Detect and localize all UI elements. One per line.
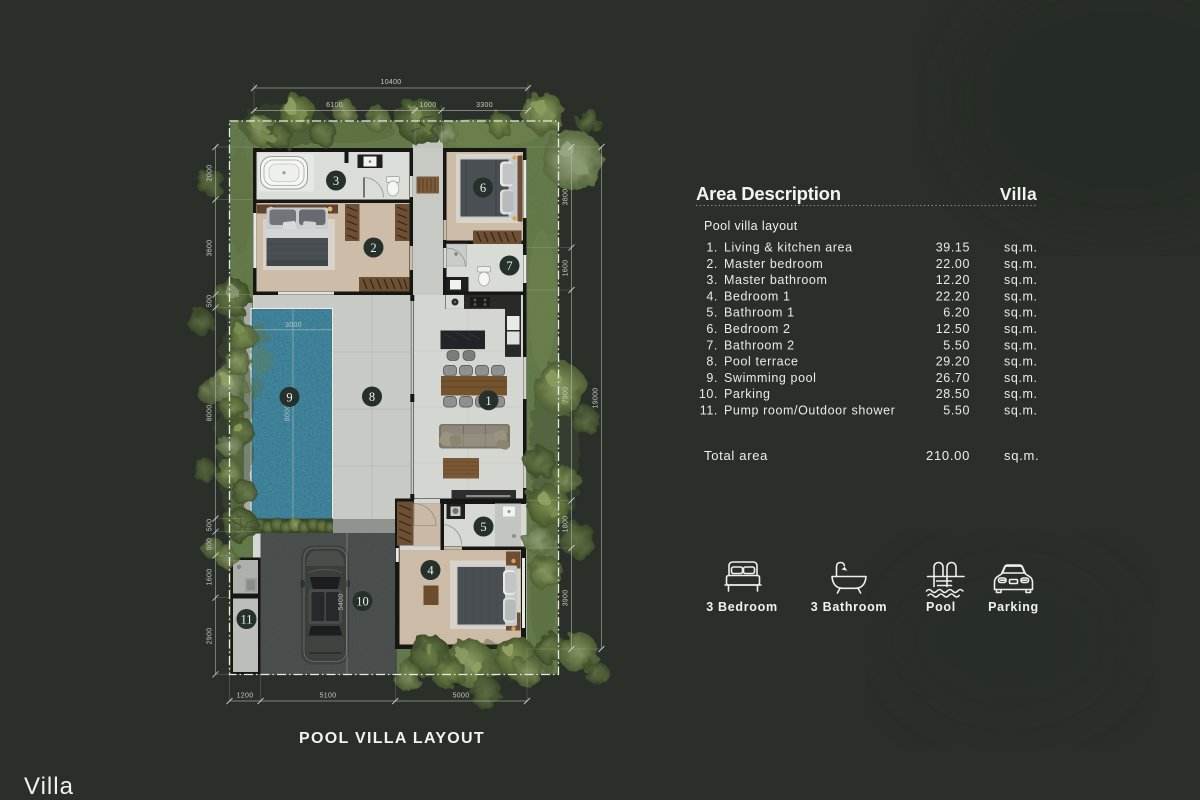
svg-text:5.50: 5.50 <box>943 338 970 352</box>
svg-text:4.: 4. <box>706 289 718 303</box>
svg-text:11.: 11. <box>700 404 718 418</box>
svg-text:Bedroom 2: Bedroom 2 <box>724 322 791 336</box>
svg-text:3 Bathroom: 3 Bathroom <box>811 600 887 614</box>
svg-text:sq.m.: sq.m. <box>1004 355 1038 369</box>
svg-text:2000: 2000 <box>207 165 214 182</box>
svg-text:Living & kitchen area: Living & kitchen area <box>724 241 853 255</box>
svg-text:sq.m.: sq.m. <box>1004 322 1038 336</box>
svg-text:Pool terrace: Pool terrace <box>724 355 799 369</box>
svg-text:22.00: 22.00 <box>936 257 970 271</box>
svg-text:Villa: Villa <box>1000 184 1037 204</box>
svg-text:29.20: 29.20 <box>936 355 970 369</box>
svg-text:sq.m.: sq.m. <box>1004 257 1038 271</box>
svg-text:4: 4 <box>427 564 434 578</box>
svg-text:sq.m.: sq.m. <box>1004 371 1038 385</box>
svg-text:sq.m.: sq.m. <box>1004 448 1039 463</box>
svg-text:3800: 3800 <box>563 189 570 206</box>
svg-text:Pool villa layout: Pool villa layout <box>704 219 798 233</box>
svg-text:2.: 2. <box>706 257 718 271</box>
svg-text:Parking: Parking <box>724 387 771 401</box>
svg-text:Bathroom 2: Bathroom 2 <box>724 338 795 352</box>
svg-text:7.: 7. <box>706 338 718 352</box>
svg-text:Bathroom 1: Bathroom 1 <box>724 306 795 320</box>
svg-text:5.50: 5.50 <box>943 404 970 418</box>
svg-text:1800: 1800 <box>563 516 570 533</box>
svg-text:900: 900 <box>207 538 214 551</box>
svg-text:22.20: 22.20 <box>936 289 970 303</box>
svg-text:Total area: Total area <box>704 448 768 463</box>
svg-text:12.50: 12.50 <box>936 322 970 336</box>
svg-text:1: 1 <box>485 394 491 408</box>
svg-text:9.: 9. <box>706 371 718 385</box>
svg-text:10: 10 <box>356 595 369 609</box>
svg-text:6100: 6100 <box>326 102 343 109</box>
svg-text:6: 6 <box>480 181 486 195</box>
svg-text:500: 500 <box>207 519 214 532</box>
svg-text:8000: 8000 <box>285 405 292 422</box>
svg-text:1600: 1600 <box>207 569 214 586</box>
svg-text:Pool: Pool <box>926 600 956 614</box>
svg-text:1.: 1. <box>706 241 718 255</box>
svg-text:sq.m.: sq.m. <box>1004 404 1038 418</box>
svg-text:3: 3 <box>333 174 339 188</box>
svg-text:8000: 8000 <box>207 405 214 422</box>
svg-text:6.20: 6.20 <box>943 306 970 320</box>
svg-text:10.: 10. <box>699 387 718 401</box>
svg-text:7: 7 <box>506 259 512 273</box>
svg-text:8: 8 <box>369 390 375 404</box>
svg-text:Master bathroom: Master bathroom <box>724 273 827 287</box>
svg-text:1000: 1000 <box>420 102 437 109</box>
svg-text:10400: 10400 <box>381 79 402 86</box>
svg-text:500: 500 <box>207 295 214 308</box>
svg-text:POOL VILLA LAYOUT: POOL VILLA LAYOUT <box>299 730 485 747</box>
svg-text:11: 11 <box>240 613 252 627</box>
svg-text:sq.m.: sq.m. <box>1004 387 1038 401</box>
svg-text:3900: 3900 <box>563 590 570 607</box>
svg-text:26.70: 26.70 <box>936 371 970 385</box>
svg-text:19000: 19000 <box>593 388 600 409</box>
svg-text:5000: 5000 <box>453 693 470 700</box>
svg-text:Master bedroom: Master bedroom <box>724 257 823 271</box>
svg-text:1600: 1600 <box>563 260 570 277</box>
svg-text:8.: 8. <box>706 355 718 369</box>
svg-text:sq.m.: sq.m. <box>1004 241 1038 255</box>
svg-text:5400: 5400 <box>338 594 345 611</box>
svg-text:2900: 2900 <box>207 628 214 645</box>
svg-text:Bedroom 1: Bedroom 1 <box>724 289 791 303</box>
svg-text:6.: 6. <box>706 322 718 336</box>
svg-text:3300: 3300 <box>476 102 493 109</box>
svg-text:sq.m.: sq.m. <box>1004 289 1038 303</box>
svg-text:1200: 1200 <box>237 693 254 700</box>
svg-text:sq.m.: sq.m. <box>1004 273 1038 287</box>
svg-text:7900: 7900 <box>563 387 570 404</box>
svg-text:12.20: 12.20 <box>936 273 970 287</box>
svg-text:5.: 5. <box>706 306 718 320</box>
svg-text:3600: 3600 <box>207 240 214 257</box>
svg-text:3 Bedroom: 3 Bedroom <box>706 600 778 614</box>
svg-text:28.50: 28.50 <box>936 387 970 401</box>
svg-text:Area Description: Area Description <box>696 183 841 204</box>
svg-text:3.: 3. <box>706 273 718 287</box>
svg-text:sq.m.: sq.m. <box>1004 306 1038 320</box>
svg-text:5: 5 <box>480 520 486 534</box>
svg-text:Parking: Parking <box>988 600 1039 614</box>
svg-text:2: 2 <box>370 241 376 255</box>
svg-text:39.15: 39.15 <box>936 241 970 255</box>
svg-text:9: 9 <box>286 390 292 404</box>
svg-text:sq.m.: sq.m. <box>1004 338 1038 352</box>
svg-text:3000: 3000 <box>285 322 302 329</box>
svg-text:Pump room/Outdoor shower: Pump room/Outdoor shower <box>724 404 895 418</box>
svg-text:Swimming pool: Swimming pool <box>724 371 817 385</box>
svg-text:5100: 5100 <box>320 693 337 700</box>
svg-text:210.00: 210.00 <box>926 448 970 463</box>
svg-text:Villa: Villa <box>24 773 74 800</box>
